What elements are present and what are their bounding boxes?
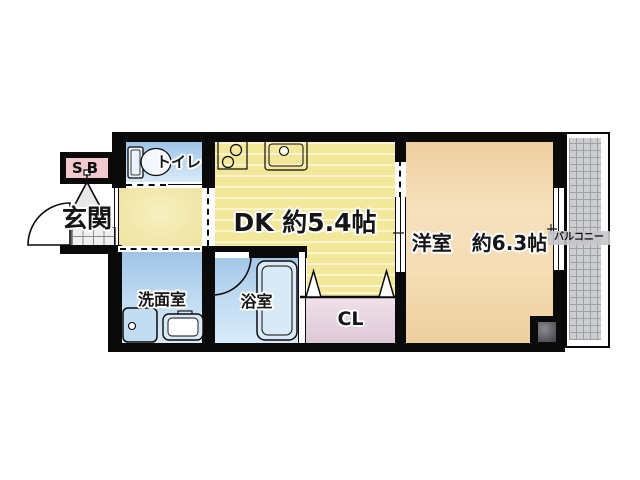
partition-bath-closet bbox=[298, 252, 306, 343]
wall-bottom bbox=[108, 343, 565, 352]
wall-east-lower bbox=[553, 270, 565, 322]
bathroom-label: 浴室 bbox=[215, 288, 298, 312]
balcony-label: バルコニー bbox=[548, 231, 610, 245]
entrance-step-line bbox=[114, 186, 115, 246]
western-room-label: 洋室 約6.3帖 bbox=[406, 227, 553, 256]
bath-door-opening bbox=[215, 252, 249, 258]
washroom-label: 洗面室 bbox=[122, 286, 202, 310]
window-western-balcony bbox=[553, 188, 565, 270]
entrance-step-line-2 bbox=[118, 186, 119, 246]
wall-dk-west-bottom bbox=[395, 272, 406, 352]
pipe-shaft-icon bbox=[538, 322, 556, 342]
hall-dk-opening-dashed bbox=[207, 188, 209, 246]
hall-washroom-opening-dashed bbox=[120, 248, 200, 250]
wall-washroom-bath bbox=[202, 246, 215, 352]
wall-top bbox=[112, 132, 565, 142]
window-center-line bbox=[558, 188, 559, 270]
closet-label: CL bbox=[306, 308, 395, 330]
toilet-opening-solid bbox=[168, 184, 202, 185]
wall-dk-west-top bbox=[395, 132, 406, 162]
wall-toilet-right bbox=[202, 132, 215, 188]
floor-plan: SB 玄関 トイレ DK 約5.4帖 洋室 約6.3帖 洗面室 浴室 CL バル… bbox=[0, 0, 640, 480]
wall-left-lower bbox=[108, 245, 122, 352]
wall-left-upper bbox=[112, 132, 126, 188]
hallway-floor bbox=[118, 188, 202, 246]
shoe-box-label: SB bbox=[66, 158, 108, 178]
toilet-opening-dashed bbox=[126, 184, 166, 186]
dk-west-opening-dashed bbox=[399, 160, 401, 198]
dining-kitchen-floor-ext bbox=[307, 246, 395, 297]
entrance-label: 玄関 bbox=[62, 199, 112, 235]
wall-east-upper bbox=[553, 132, 565, 188]
toilet-label: トイレ bbox=[156, 151, 201, 172]
sliding-door-center-line bbox=[400, 197, 401, 272]
dining-kitchen-label: DK 約5.4帖 bbox=[215, 203, 395, 239]
